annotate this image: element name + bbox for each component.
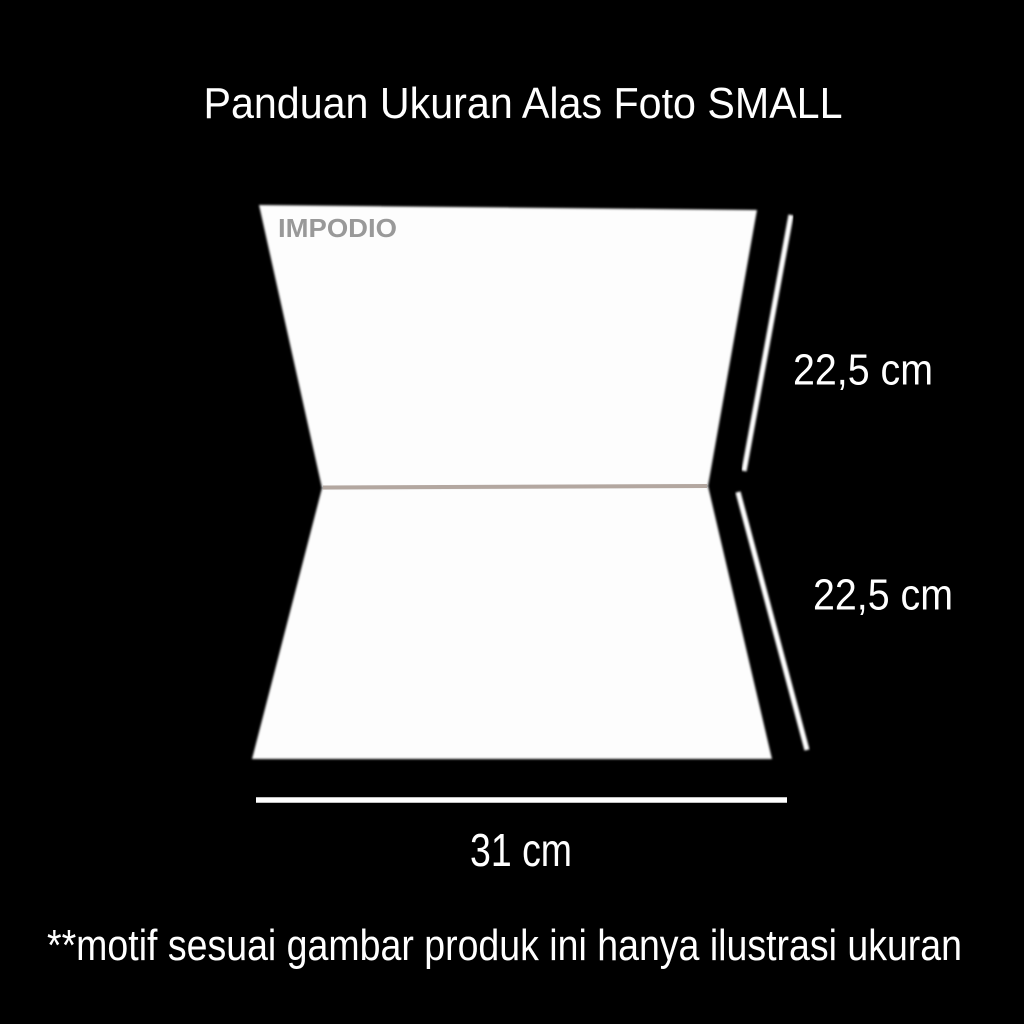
svg-text:**motif sesuai gambar produk i: **motif sesuai gambar produk ini hanya i… bbox=[47, 922, 962, 970]
svg-text:22,5 cm: 22,5 cm bbox=[793, 347, 933, 395]
svg-text:IMPODIO: IMPODIO bbox=[278, 213, 397, 243]
svg-text:22,5 cm: 22,5 cm bbox=[813, 572, 953, 620]
svg-text:Panduan Ukuran Alas Foto SMALL: Panduan Ukuran Alas Foto SMALL bbox=[204, 80, 843, 128]
svg-text:31 cm: 31 cm bbox=[470, 824, 572, 876]
